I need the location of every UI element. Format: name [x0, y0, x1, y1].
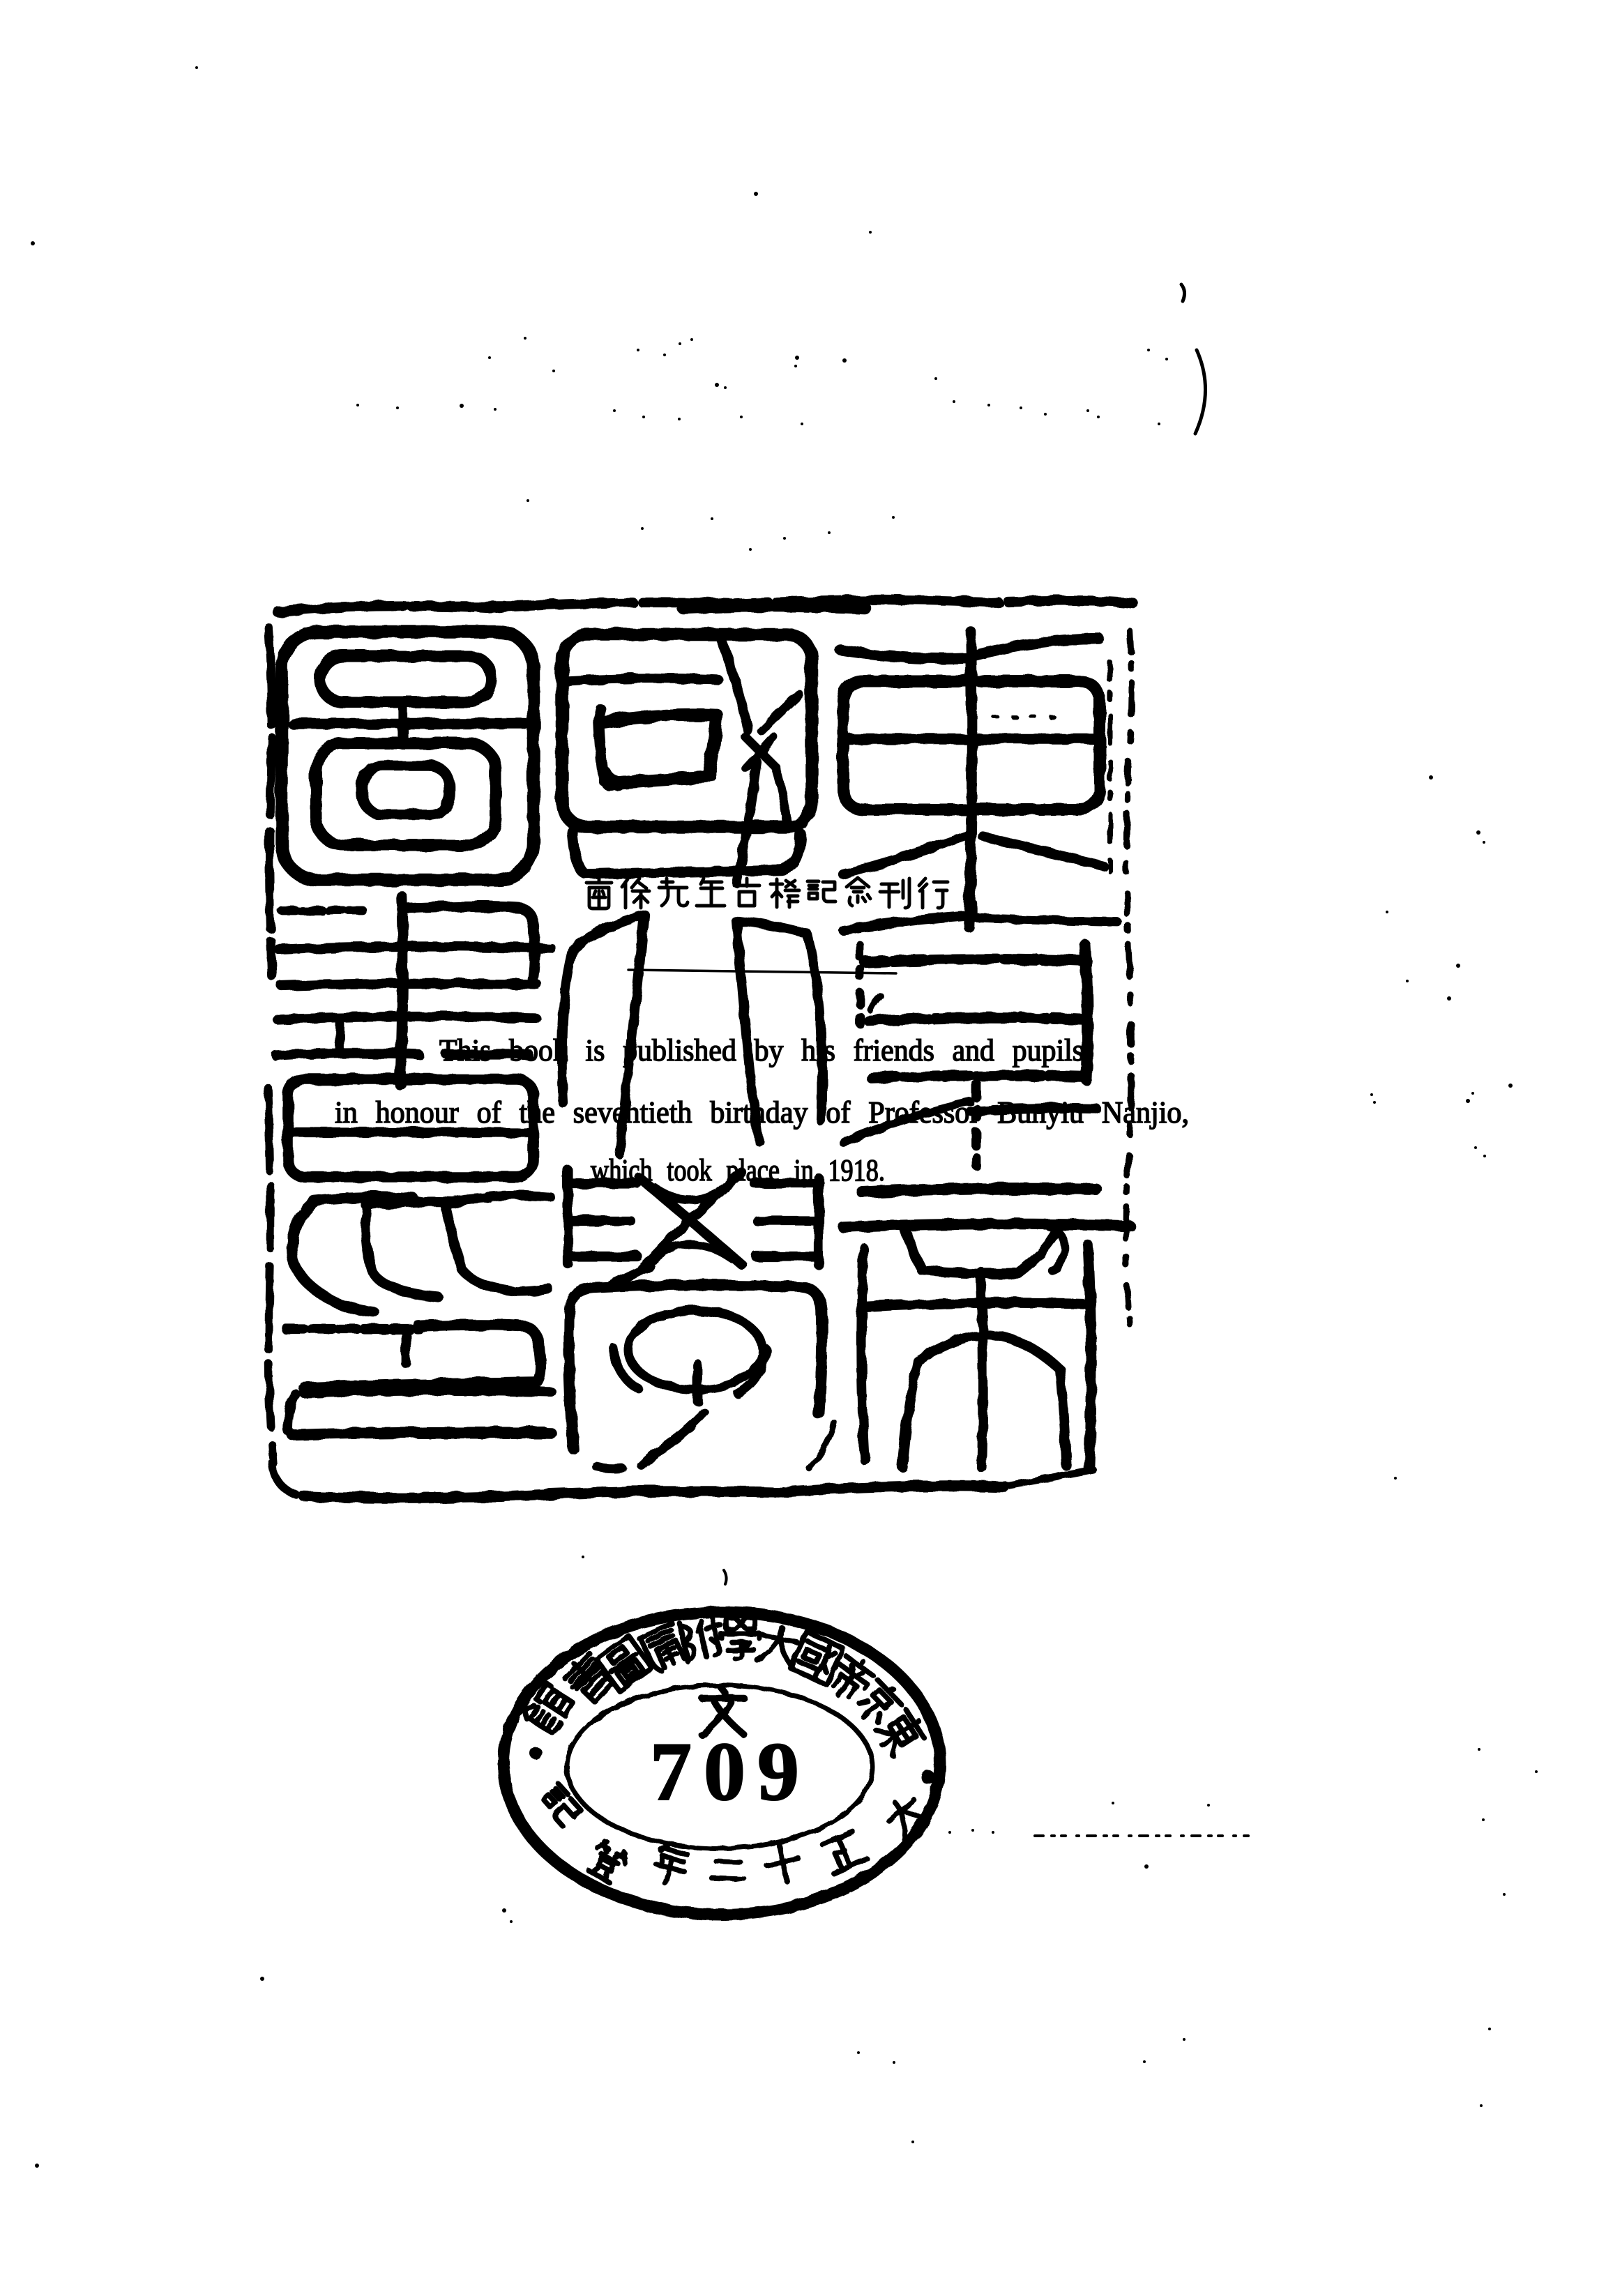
svg-text:which took place in 1918.: which took place in 1918.: [591, 1153, 885, 1187]
svg-text:in honour of the seventieth bi: in honour of the seventieth birthday of …: [335, 1095, 1189, 1130]
svg-text:709: 709: [650, 1725, 811, 1818]
svg-text:This book is published by his: This book is published by his friends an…: [439, 1033, 1084, 1067]
